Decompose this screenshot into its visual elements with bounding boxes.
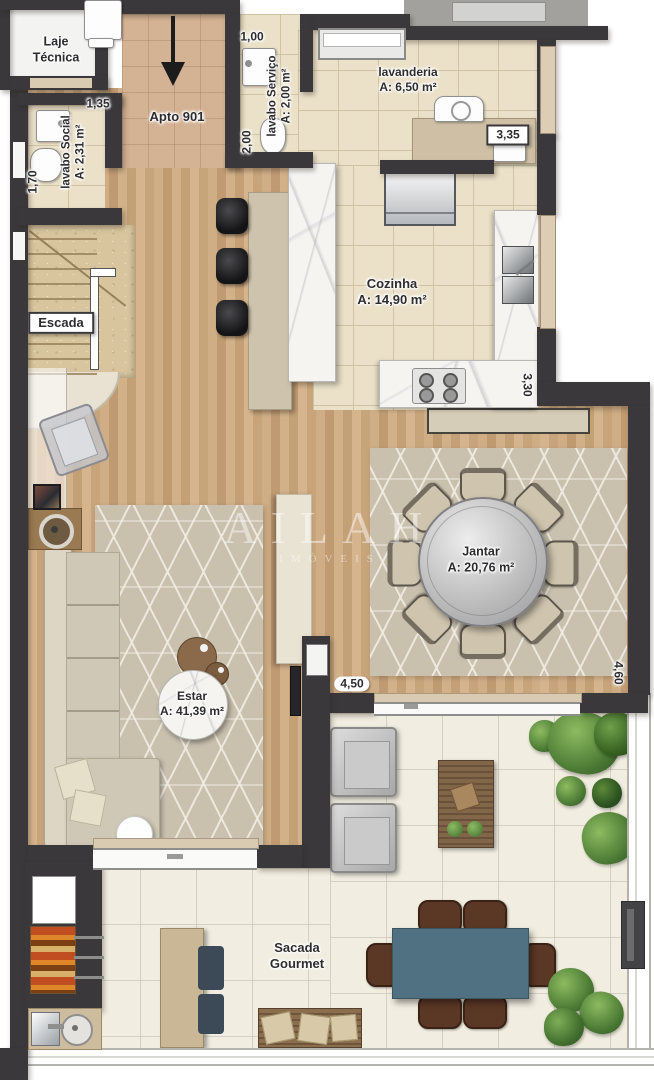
bbq-skewer	[74, 936, 104, 939]
outdoor-chair	[463, 995, 507, 1029]
wall-segment	[108, 0, 240, 14]
dining-chair	[460, 624, 506, 659]
door-leaf	[540, 46, 556, 134]
island-cabinet	[248, 192, 292, 410]
wall-segment	[0, 1048, 28, 1080]
counter-chair	[198, 994, 224, 1034]
bbq-sink	[31, 1012, 60, 1046]
laje-sill	[30, 78, 92, 88]
left-wall-window	[13, 142, 25, 178]
armchair-seat	[344, 741, 390, 789]
counter-chair	[198, 946, 224, 990]
plant	[544, 1008, 584, 1046]
exterior-roof-vent	[452, 2, 546, 22]
washing-machine	[434, 96, 484, 122]
room-label-lavabo-social: lavabo Social A: 2,31 m²	[60, 115, 89, 189]
room-label-lavabo-servico: lavabo Serviço A: 2,00 m²	[266, 55, 295, 136]
room-label-estar: Estar A: 41,39 m²	[160, 689, 224, 719]
bar-stool	[216, 248, 248, 284]
entry-arrow-head	[161, 62, 185, 86]
bench-cushion	[330, 1014, 358, 1042]
door-handle	[404, 704, 418, 709]
stair-steps	[28, 225, 97, 378]
balcony-railing-bottom	[28, 1048, 654, 1068]
wall-segment	[380, 160, 494, 174]
room-label-jantar: Jantar A: 20,76 m²	[448, 544, 515, 575]
cooktop	[412, 368, 466, 404]
entry-arrow-line	[171, 16, 175, 64]
bbq-skewer	[74, 956, 104, 959]
room-label-cozinha: Cozinha A: 14,90 m²	[357, 276, 426, 309]
burner	[443, 373, 458, 388]
bar-stool	[216, 198, 248, 234]
bench-cushion	[297, 1013, 331, 1045]
sofa-seat	[66, 552, 120, 766]
lavanderia-window	[318, 28, 406, 60]
bench-cushion	[260, 1011, 295, 1045]
outdoor-armchair	[330, 727, 397, 797]
decor-bowl	[39, 514, 74, 549]
dim-lavanderia-width: 3,35	[486, 125, 529, 146]
burner-center	[72, 1025, 78, 1031]
deck-coffee-table	[438, 760, 494, 848]
mini-plant	[467, 821, 483, 837]
plant	[556, 776, 586, 806]
watermark: AILAH IMÓVEIS	[223, 505, 436, 565]
stair-railing	[90, 268, 116, 277]
wall-segment	[537, 382, 650, 406]
table-tray	[450, 782, 480, 812]
wall-segment	[537, 327, 556, 390]
wall-segment	[330, 693, 374, 713]
dim-cozinha-depth: 3,30	[520, 373, 535, 396]
wall-window	[306, 644, 328, 676]
bowl-center	[51, 526, 58, 533]
watermark-brand: AILAH	[223, 505, 436, 551]
table-decor-dot	[218, 667, 224, 673]
door-leaf	[540, 215, 556, 329]
pillar-inset	[627, 909, 634, 961]
wall-segment	[225, 14, 240, 168]
wall-segment	[0, 0, 10, 90]
room-label-laje-tecnica: Laje Técnica	[33, 34, 80, 65]
outdoor-dining-table	[392, 928, 529, 999]
dim-lavabo-social-width: 1,35	[86, 97, 109, 112]
wall-segment	[628, 406, 650, 695]
faucet-dot	[245, 60, 252, 67]
dining-chair	[544, 541, 579, 587]
entry-cabinet	[84, 0, 122, 40]
burner	[419, 388, 434, 403]
bbq-grill	[30, 926, 76, 994]
floor-plan: Laje Técnica Apto 901 lavabo Social A: 2…	[0, 0, 654, 1080]
wall-art	[33, 484, 61, 510]
sliding-door-balcony	[374, 693, 580, 713]
sliding-door-estar	[93, 838, 257, 868]
dim-lavabo-servico-width: 1,00	[240, 30, 263, 45]
bbq-prep-box	[32, 876, 76, 924]
burner-handle	[48, 1024, 64, 1029]
mini-plant	[447, 821, 463, 837]
room-label-lavanderia: lavanderia A: 6,50 m²	[378, 65, 437, 95]
kitchen-sink	[502, 276, 534, 304]
wall-segment	[537, 132, 556, 215]
outdoor-bench	[258, 1008, 362, 1048]
watermark-tagline: IMÓVEIS	[223, 553, 436, 565]
sofa-cushion	[69, 789, 107, 827]
dim-lavabo-servico-depth: 2,00	[240, 130, 255, 153]
wall-segment	[300, 14, 313, 92]
entry-cabinet-small	[88, 38, 114, 48]
room-label-escada: Escada	[28, 312, 94, 334]
buffet-sideboard	[427, 408, 590, 434]
table-decor-dot	[200, 644, 208, 652]
railing-pillar	[621, 901, 645, 969]
door-handle	[167, 854, 183, 859]
outdoor-chair	[418, 995, 462, 1029]
outdoor-armchair	[330, 803, 397, 873]
armchair-seat	[344, 817, 390, 865]
wall-segment	[225, 152, 313, 168]
washer-door	[451, 101, 471, 121]
room-label-sacada-gourmet: Sacada Gourmet	[270, 940, 324, 973]
fridge-door-line	[386, 212, 454, 214]
dim-jantar-depth: 4,60	[611, 661, 626, 684]
wall-segment	[18, 208, 122, 225]
burner	[419, 373, 434, 388]
left-wall-window	[13, 232, 25, 260]
wall-segment	[257, 845, 302, 868]
fridge	[384, 172, 456, 226]
window-glass	[323, 33, 401, 47]
dim-lavabo-social-depth: 1,70	[26, 170, 41, 193]
wall-segment	[580, 693, 648, 713]
armchair-seat	[51, 417, 99, 467]
balcony-railing-right	[627, 693, 654, 1050]
side-burner	[61, 1014, 93, 1046]
tv-screen	[290, 666, 301, 716]
wall-segment	[400, 26, 608, 40]
bbq-skewer	[74, 976, 104, 979]
burner	[443, 388, 458, 403]
bar-stool	[216, 300, 248, 336]
door-glass	[93, 848, 257, 870]
plant	[592, 778, 622, 808]
unit-label: Apto 901	[150, 109, 205, 125]
dim-sacada-width: 4,50	[334, 677, 369, 692]
island-countertop	[288, 163, 336, 382]
